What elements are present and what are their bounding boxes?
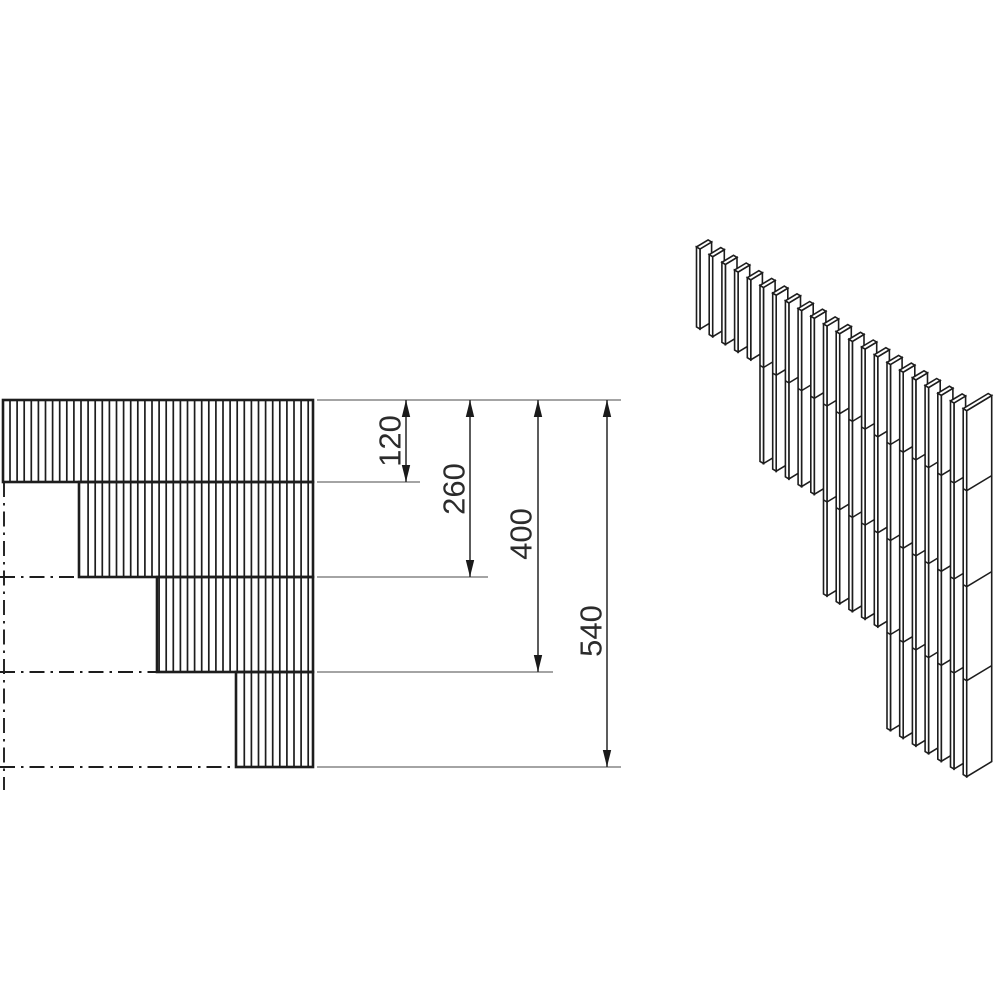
arrow-up-icon <box>603 400 611 417</box>
dimension-label-120: 120 <box>373 415 408 467</box>
board-edge-face <box>697 247 701 329</box>
dimension-120: 120 <box>317 400 420 482</box>
board-edge-face <box>824 324 828 596</box>
isometric-view <box>697 240 992 777</box>
arrow-up-icon <box>402 400 410 417</box>
board-edge-face <box>912 378 916 746</box>
board-edge-face <box>887 362 891 730</box>
dimension-label-400: 400 <box>504 508 539 560</box>
board-edge-face <box>951 401 955 769</box>
board-edge-face <box>849 339 853 611</box>
board-edge-face <box>798 309 802 487</box>
front-band-260 <box>79 482 313 577</box>
board-edge-face <box>874 355 878 627</box>
board-edge-face <box>900 370 904 738</box>
arrow-down-icon <box>534 655 542 672</box>
board-edge-face <box>963 409 967 777</box>
technical-drawing-page: 120260400540 <box>0 0 1000 1000</box>
board-edge-face <box>925 386 929 754</box>
dimension-label-540: 540 <box>574 605 609 657</box>
board-edge-face <box>773 293 777 471</box>
board-edge-face <box>862 347 866 619</box>
front-band-540 <box>236 672 313 767</box>
arrow-up-icon <box>466 400 474 417</box>
front-band-400 <box>157 577 313 672</box>
band-outline <box>3 400 313 482</box>
dimension-400: 400 <box>317 400 553 672</box>
band-outline <box>79 482 313 577</box>
front-band-120 <box>3 400 313 482</box>
board-edge-face <box>811 316 815 494</box>
iso-corner-column <box>963 394 992 777</box>
drawing-svg: 120260400540 <box>0 0 1000 1000</box>
board-edge-face <box>760 285 764 463</box>
dimension-annotations: 120260400540 <box>317 400 621 767</box>
board-edge-face <box>735 270 739 352</box>
board-edge-face <box>722 262 726 344</box>
dimension-label-260: 260 <box>437 463 472 515</box>
arrow-down-icon <box>466 560 474 577</box>
board-edge-face <box>747 278 751 360</box>
board-wide-face <box>967 396 992 777</box>
board-edge-face <box>836 332 840 604</box>
arrow-up-icon <box>534 400 542 417</box>
board-edge-face <box>938 393 942 761</box>
dimension-540: 540 <box>317 400 621 767</box>
board-edge-face <box>709 255 713 337</box>
front-elevation-view <box>0 400 313 790</box>
board-edge-face <box>785 301 789 479</box>
arrow-down-icon <box>603 750 611 767</box>
